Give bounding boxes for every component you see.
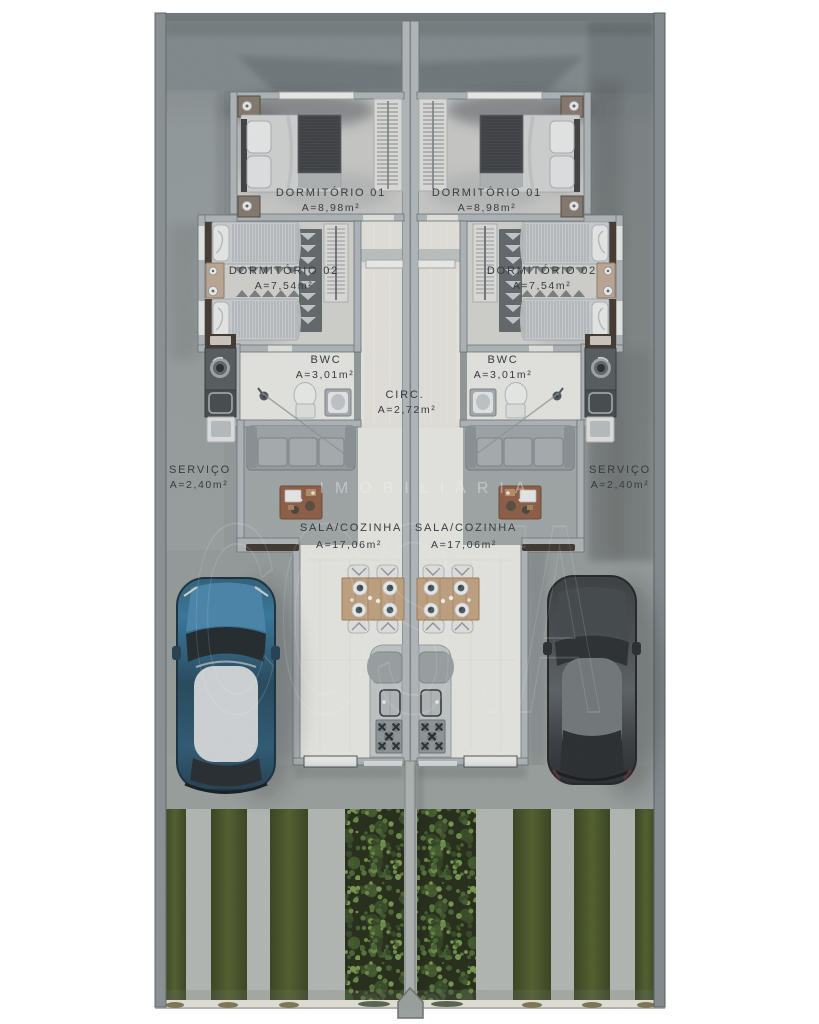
svg-text:A=3,01m²: A=3,01m² [296,369,355,381]
svg-text:CIRC.: CIRC. [386,389,425,401]
svg-text:DORMITÓRIO 02: DORMITÓRIO 02 [487,264,597,277]
svg-text:A=2,40m²: A=2,40m² [591,479,650,491]
svg-text:A=2,72m²: A=2,72m² [378,404,437,416]
svg-text:SALA/COZINHA: SALA/COZINHA [300,522,402,534]
svg-text:BWC: BWC [487,354,518,366]
svg-text:DORMITÓRIO 02: DORMITÓRIO 02 [229,264,339,277]
svg-text:DORMITÓRIO 01: DORMITÓRIO 01 [276,186,386,199]
svg-text:BWC: BWC [310,354,341,366]
svg-text:SERVIÇO: SERVIÇO [589,464,651,476]
svg-text:A=8,98m²: A=8,98m² [302,202,361,214]
svg-text:A=17,06m²: A=17,06m² [316,539,382,551]
svg-text:A=7,54m²: A=7,54m² [513,280,572,292]
svg-text:A=2,40m²: A=2,40m² [170,479,229,491]
svg-text:SALA/COZINHA: SALA/COZINHA [415,522,517,534]
svg-text:SERVIÇO: SERVIÇO [169,464,231,476]
svg-text:DORMITÓRIO 01: DORMITÓRIO 01 [432,186,542,199]
svg-text:A=7,54m²: A=7,54m² [255,280,314,292]
svg-text:A=8,98m²: A=8,98m² [458,202,517,214]
svg-text:A=3,01m²: A=3,01m² [474,369,533,381]
svg-text:A=17,06m²: A=17,06m² [431,539,497,551]
